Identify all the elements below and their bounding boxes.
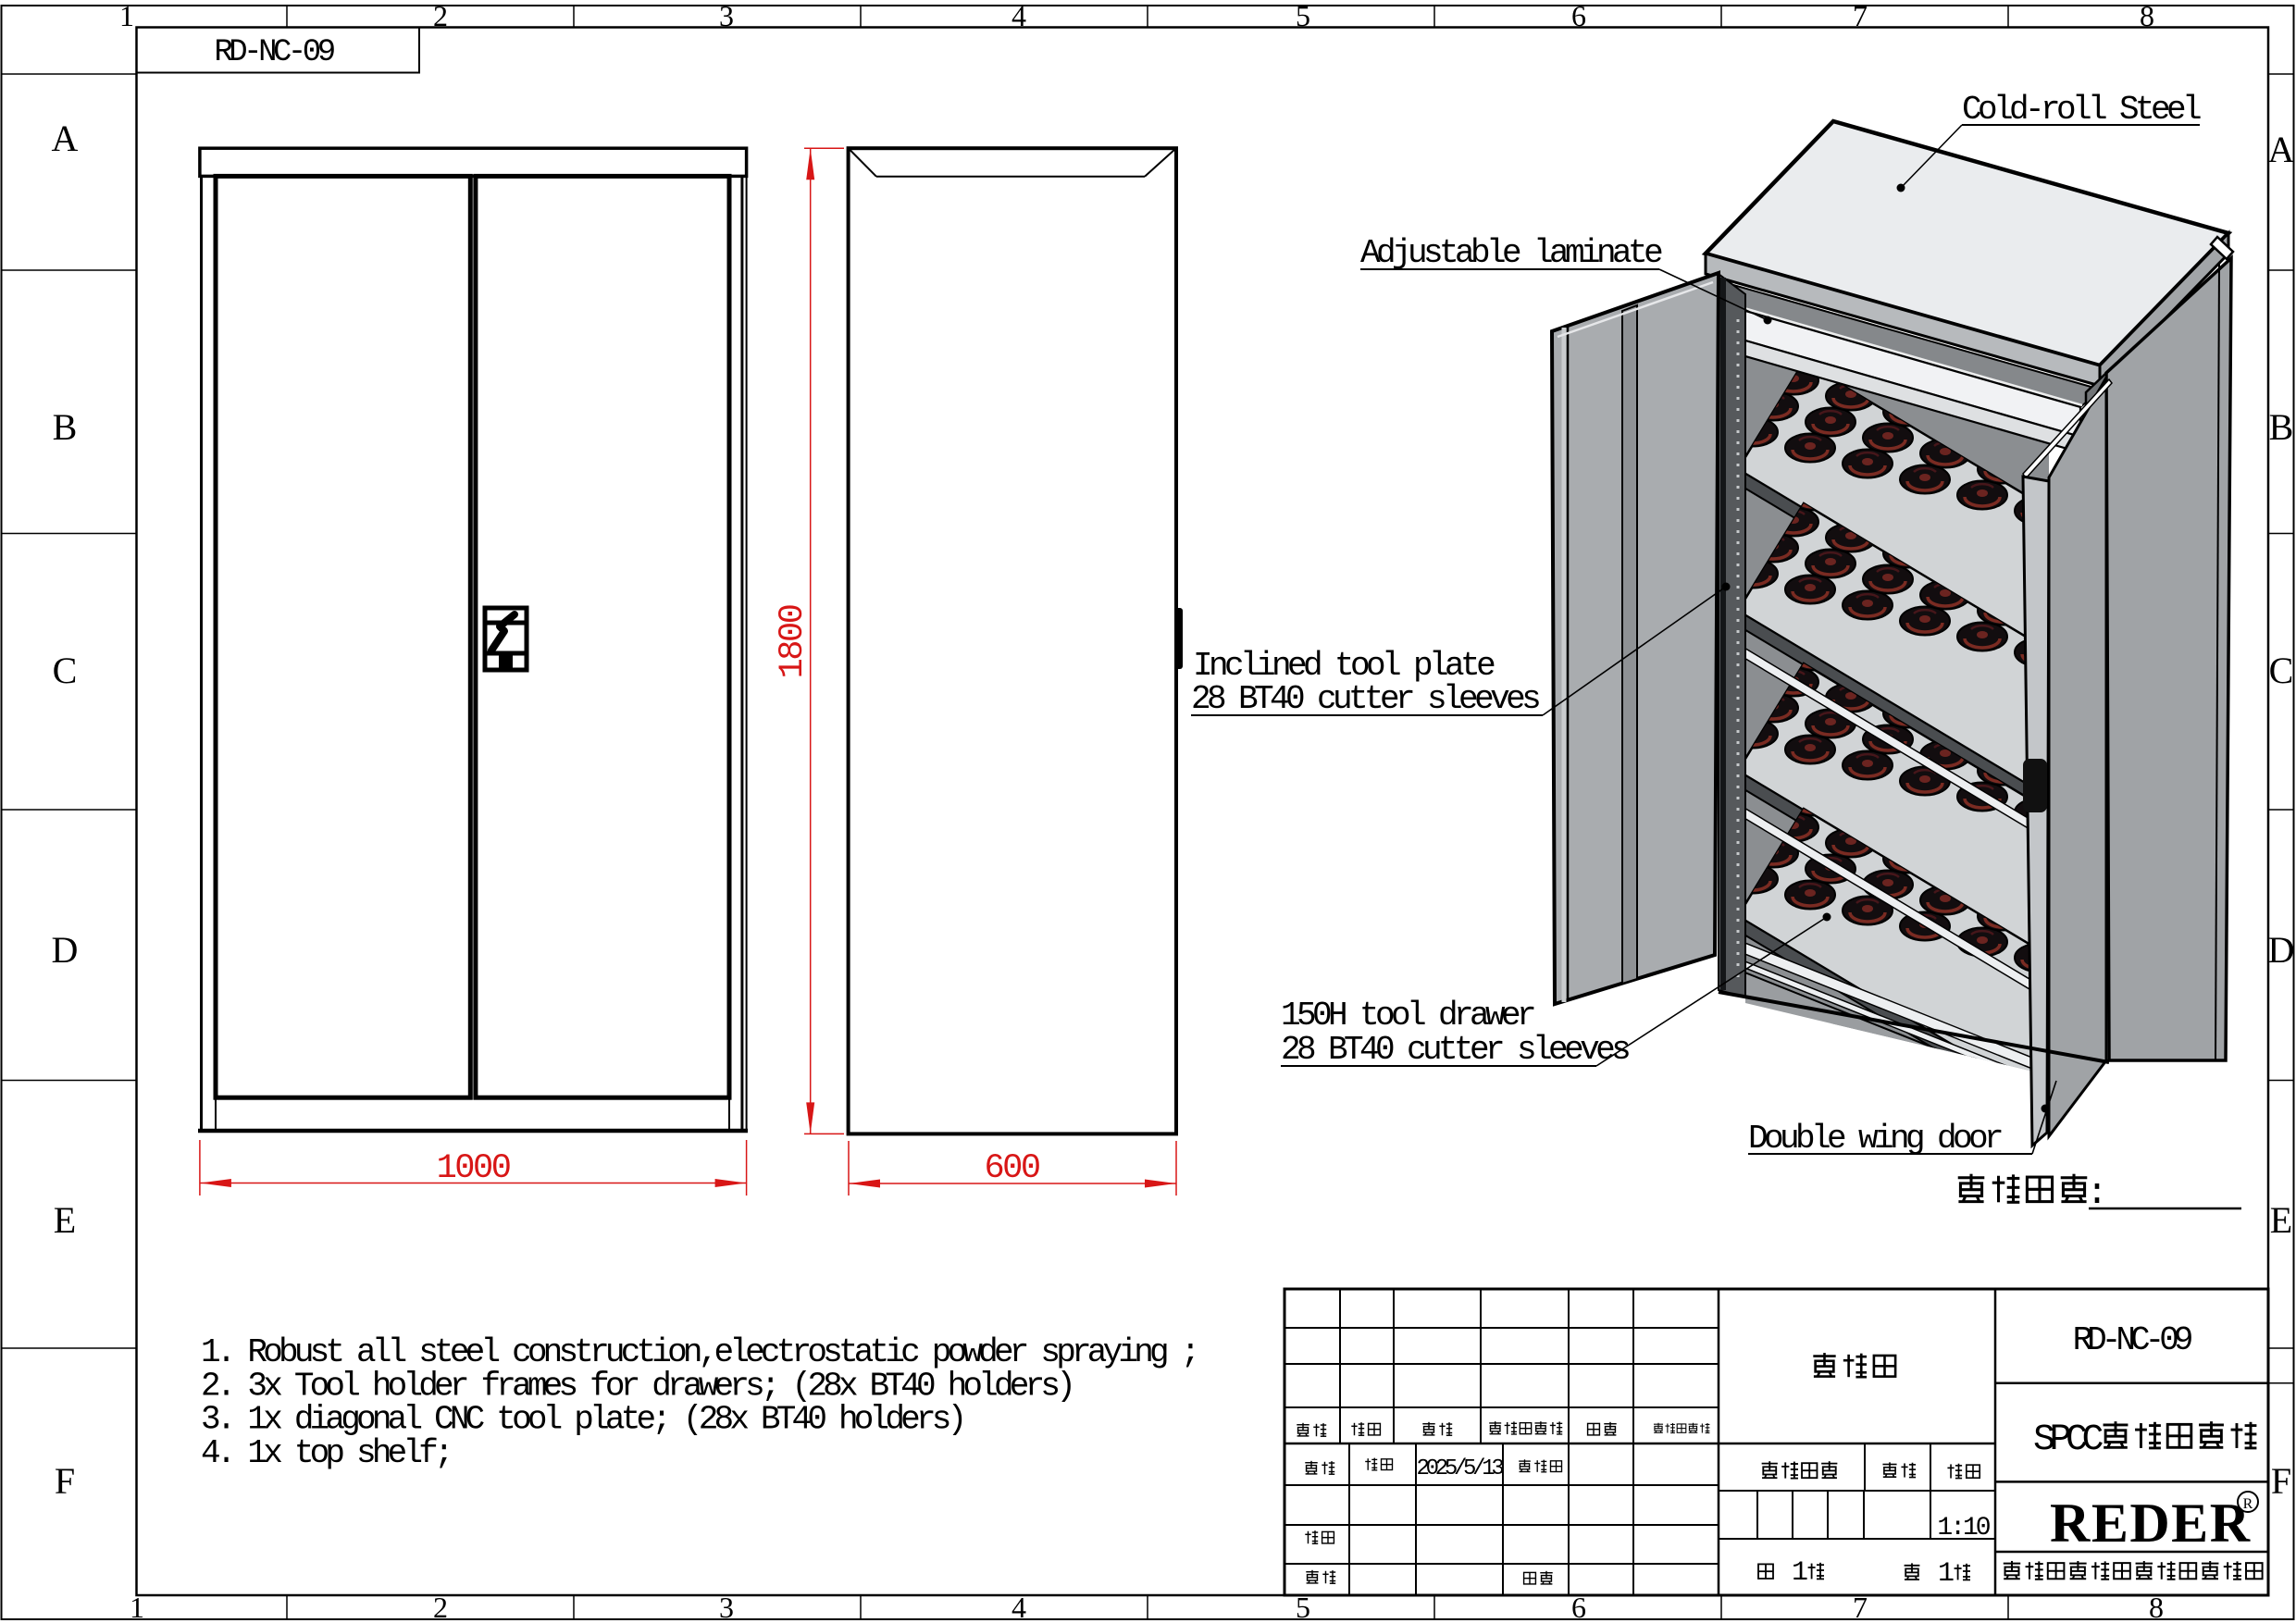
svg-text:RD-NC-09: RD-NC-09 (2073, 1321, 2192, 1359)
svg-text:4: 4 (1011, 0, 1026, 32)
svg-text:600: 600 (984, 1149, 1038, 1188)
svg-text:2: 2 (433, 1591, 448, 1623)
svg-text:B: B (2269, 406, 2294, 448)
svg-text:1000: 1000 (437, 1149, 510, 1188)
svg-text:D: D (2268, 929, 2295, 971)
svg-text:SPCC: SPCC (2033, 1419, 2104, 1461)
svg-text:1. Robust all steel constructi: 1. Robust all steel construction,electro… (201, 1333, 1196, 1371)
svg-text:1: 1 (130, 1591, 144, 1623)
svg-text:1: 1 (119, 0, 134, 32)
svg-text:E: E (54, 1199, 76, 1241)
svg-text:E: E (2270, 1199, 2292, 1241)
svg-text:F: F (2271, 1460, 2291, 1502)
svg-text:150H tool drawer: 150H tool drawer (1281, 997, 1534, 1035)
svg-text:7: 7 (1853, 0, 1868, 32)
svg-text:A: A (52, 118, 79, 159)
svg-text:2. 3x Tool holder frames for d: 2. 3x Tool holder frames for drawers; (2… (201, 1367, 1072, 1405)
svg-text:4: 4 (1011, 1591, 1026, 1623)
svg-text:B: B (53, 406, 78, 448)
svg-text:1800: 1800 (774, 605, 813, 678)
svg-text:1: 1 (1792, 1557, 1808, 1589)
svg-text:Cold-roll Steel: Cold-roll Steel (1962, 91, 2201, 129)
svg-text:3: 3 (719, 1591, 734, 1623)
svg-text:28 BT40 cutter sleeves: 28 BT40 cutter sleeves (1281, 1031, 1629, 1069)
svg-text:8: 8 (2140, 0, 2154, 32)
svg-text:6: 6 (1571, 0, 1586, 32)
svg-text:C: C (53, 650, 78, 691)
svg-text:R: R (2243, 1496, 2253, 1512)
svg-text:5: 5 (1296, 0, 1310, 32)
svg-text:Adjustable laminate: Adjustable laminate (1360, 234, 1662, 272)
svg-text:D: D (52, 929, 79, 971)
svg-text:28 BT40 cutter sleeves: 28 BT40 cutter sleeves (1191, 680, 1539, 718)
svg-text:F: F (55, 1460, 75, 1502)
svg-text:1:10: 1:10 (1937, 1514, 1990, 1542)
svg-text:3. 1x diagonal CNC tool plate;: 3. 1x diagonal CNC tool plate; (28x BT40… (201, 1401, 962, 1439)
svg-text:REDER: REDER (2050, 1493, 2252, 1554)
svg-text:2025/5/13: 2025/5/13 (1417, 1456, 1504, 1481)
svg-text:Double wing door: Double wing door (1748, 1120, 2002, 1158)
svg-text:C: C (2269, 650, 2294, 691)
svg-text:1: 1 (1938, 1558, 1955, 1590)
svg-text:Inclined tool plate: Inclined tool plate (1193, 647, 1495, 685)
svg-text:RD-NC-09: RD-NC-09 (214, 35, 334, 70)
svg-text:A: A (2268, 129, 2295, 170)
svg-text:4. 1x top shelf;: 4. 1x top shelf; (201, 1434, 450, 1472)
svg-text:3: 3 (719, 0, 734, 32)
svg-text:2: 2 (433, 0, 448, 32)
